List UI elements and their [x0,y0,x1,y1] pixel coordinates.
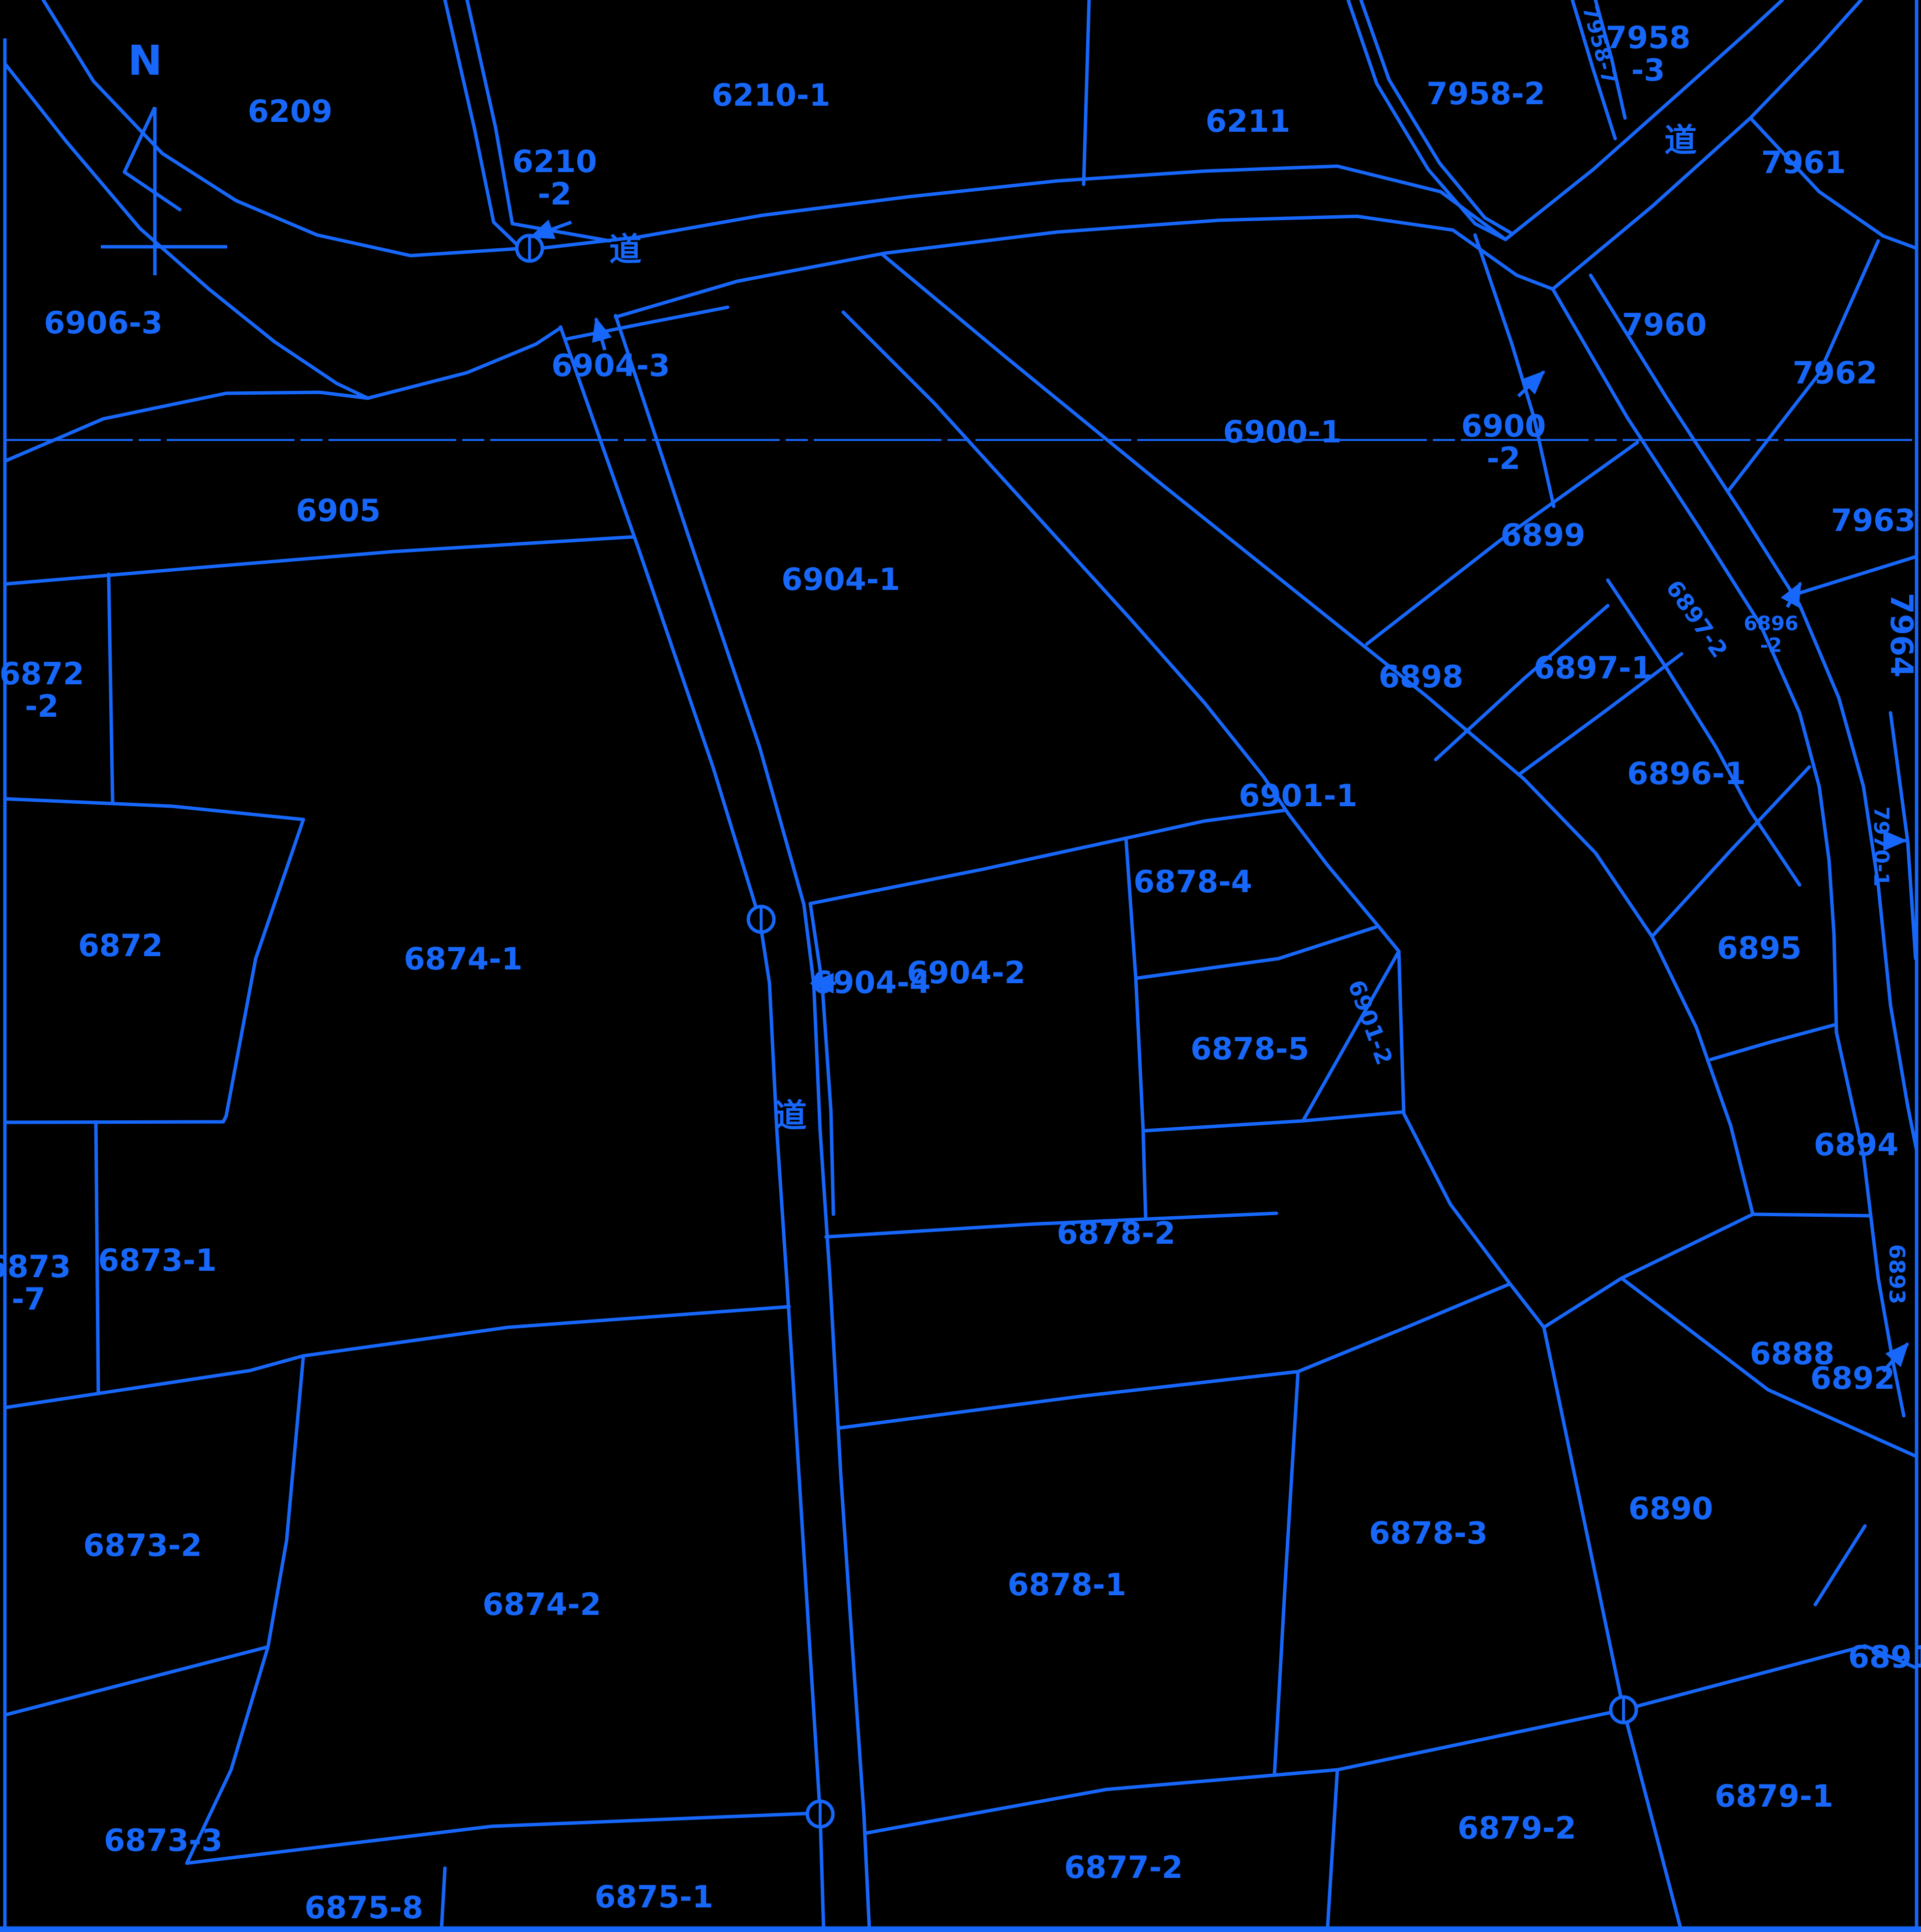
parcel-label-6210-2: 6210-2 [512,144,597,212]
parcel-label-6874-1: 6874-1 [404,941,522,977]
boundary-bnd-6878-2-6878-1 [838,1372,1298,1428]
boundary-bnd-6874-1-6874-2 [303,1307,789,1356]
north-letter: N [128,36,162,85]
parcel-label-6892: 6892 [1810,1360,1895,1396]
parcel-label-7970-1: 7970-1 [1869,806,1893,887]
parcel-label-6904-2: 6904-2 [907,955,1025,991]
boundary-bnd-corridor-end [1544,1214,1753,1327]
parcel-label-6878-3: 6878-3 [1369,1515,1487,1551]
parcel-label-6875-1: 6875-1 [594,1879,713,1915]
parcel-label-6894: 6894 [1814,1127,1899,1163]
boundary-bnd-6877-2-6879-2 [1328,1770,1337,1928]
parcel-label-6901-1: 6901-1 [1239,778,1357,814]
parcel-label-6896-1: 6896-1 [1627,756,1745,791]
parcel-label-6901-2: 6901-2 [1343,976,1398,1068]
parcel-label-6895: 6895 [1717,930,1802,966]
boundary-bnd-6878-5-south [1146,1112,1402,1131]
parcel-label-6878-2: 6878-2 [1057,1215,1175,1251]
boundary-bnd-6878-4-north [1126,810,1286,838]
parcel-label-6890: 6890 [1628,1491,1714,1526]
parcel-label-6899: 6899 [1501,517,1586,553]
boundary-bnd-6873-col-east [187,1356,303,1863]
boundary-bnd-6872-2-east [109,574,113,801]
boundary-bnd-6906-3-6905 [5,392,368,461]
parcel-label-7958-2: 7958-2 [1426,76,1545,112]
boundary-bnd-6873-2-6873-3 [6,1647,268,1715]
parcel-label-7960: 7960 [1622,307,1707,343]
parcel-label-6873-7: 6873-7 [0,1249,71,1317]
parcel-label-6877-2: 6877-2 [1064,1849,1182,1885]
boundary-bnd-6878-4-south [1136,927,1376,978]
boundary-bnd-6890-6891 [1815,1526,1865,1605]
parcel-label-6879-1: 6879-1 [1714,1778,1833,1814]
boundary-bnd-6878-3-north [1298,1284,1509,1372]
parcel-label-6209: 6209 [248,93,333,129]
parcel-label-6904-1: 6904-1 [781,561,900,597]
boundary-bnd-6874-2-south [187,1813,819,1863]
boundary-bnd-6894-6888 [1753,1214,1871,1216]
parcel-label-6898: 6898 [1379,659,1464,695]
boundary-bnd-6210-1-6211 [1084,0,1089,184]
boundary-bnd-6872-south [5,1122,223,1122]
boundary-channel-7970-1 [1891,713,1916,959]
parcel-label-6873-2: 6873-2 [83,1527,202,1563]
boundary-ew-road-bottom-e [616,216,1553,317]
map-drawing: N62096210-16210-262117958-27958-37958-7道… [0,0,1921,1932]
boundary-corridor-ne [883,255,1753,1214]
parcel-label-6893: 6893 [1884,1244,1909,1304]
boundary-bnd-6895-6894 [1711,1025,1834,1059]
boundary-bnd-6905-south [5,537,634,584]
road-label-2: 道 [1664,121,1697,159]
road-label-3: 道 [774,1097,807,1135]
parcel-label-6874-2: 6874-2 [482,1586,601,1622]
parcel-label-6878-5: 6878-5 [1190,1031,1309,1067]
cadastral-map: N62096210-16210-262117958-27958-37958-7道… [0,0,1921,1932]
boundary-corridor-sw [843,312,1544,1327]
parcel-label-6872-2: 6872-2 [0,656,84,724]
parcel-label-6879-2: 6879-2 [1457,1810,1576,1846]
parcel-label-6904-3: 6904-3 [551,348,670,383]
boundary-strip-road-right [467,0,512,224]
parcel-label-6873-1: 6873-1 [98,1242,216,1278]
parcel-label-6897-1: 6897-1 [1534,650,1652,686]
boundary-bnd-7961-7962 [1750,118,1917,248]
boundary-sliver-6904-3 [565,307,728,339]
parcel-label-7962: 7962 [1793,355,1878,391]
boundary-bnd-6875-8-6875-1 [442,1868,445,1928]
boundary-bnd-6872-east [223,820,303,1122]
parcel-label-6873-3: 6873-3 [104,1822,222,1858]
parcel-label-6905: 6905 [296,493,381,528]
boundary-dbl-curve-b [1361,0,1512,234]
boundary-strip-road-left [445,0,519,247]
parcel-label-6897-2: 6897-2 [1661,575,1733,663]
boundary-ew-road-bottom-w [368,328,561,398]
parcel-label-6211: 6211 [1206,103,1291,139]
parcel-label-6210-1: 6210-1 [711,77,830,113]
boundary-bnd-6896-1-6895 [1652,767,1809,937]
boundary-bnd-6878-1-6878-3 [1274,1372,1298,1775]
parcel-label-7964: 7964 [1884,593,1920,678]
parcel-label-7963: 7963 [1831,502,1916,538]
parcel-label-6878-4: 6878-4 [1133,864,1252,900]
parcel-label-6891: 6891 [1848,1639,1921,1675]
boundary-bnd-6873-1-south [6,1356,303,1407]
boundary-bnd-6904-2-north [810,838,1126,904]
boundary-bnd-6872-north [6,799,303,820]
parcel-label-6906-3: 6906-3 [44,305,162,341]
parcel-label-6872: 6872 [78,928,163,964]
boundary-bnd-6878-1-south [865,1770,1337,1833]
road-label-1: 道 [609,231,642,268]
boundary-bnd-7962-7963 [1794,556,1917,595]
parcel-label-6900-2: 6900-2 [1461,408,1546,476]
boundary-bnd-6904-2-south [826,1213,1276,1237]
parcel-label-6900-1: 6900-1 [1223,414,1341,450]
parcel-label-7961: 7961 [1761,145,1846,180]
parcel-label-6878-1: 6878-1 [1007,1567,1126,1603]
parcel-label-6896-2: 6896-2 [1744,613,1798,657]
parcel-label-6875-8: 6875-8 [304,1890,423,1926]
